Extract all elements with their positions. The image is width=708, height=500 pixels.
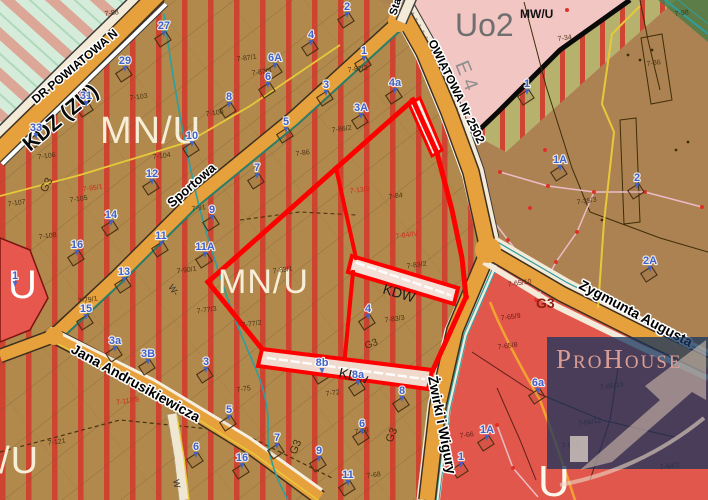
- house-number: 1A: [553, 154, 567, 166]
- house-number: 4: [308, 29, 315, 41]
- house-number: 6: [193, 441, 199, 453]
- house-number: 4a: [389, 77, 402, 89]
- house-number: 6: [265, 71, 271, 83]
- house-number: 12: [146, 168, 158, 180]
- house-number: 2A: [643, 255, 657, 267]
- house-number: 1: [12, 270, 18, 282]
- watermark: ProHouse: [547, 337, 708, 485]
- house-number: 2: [634, 172, 640, 184]
- watermark-brand: ProHouse: [556, 344, 683, 374]
- house-base-icon: [570, 436, 588, 462]
- house-number: 9: [209, 204, 215, 216]
- zone-label: Uo2: [455, 7, 514, 43]
- house-number: 7: [254, 162, 260, 174]
- zone-label: MN/U: [218, 263, 309, 301]
- zone-label: MW/U: [520, 7, 553, 21]
- house-number: 13: [118, 266, 130, 278]
- house-number: 27: [158, 20, 170, 32]
- zone-label: MN/U: [0, 440, 39, 482]
- house-number: 5: [283, 116, 289, 128]
- house-number: 1: [458, 451, 464, 463]
- house-number: 6a: [532, 377, 545, 389]
- zoning-map[interactable]: MN/UMN/UMN/UUUUo2MW/UE 4KDZ (ZU)KDWKDwG3…: [0, 0, 708, 500]
- house-number: 1A: [480, 424, 494, 436]
- house-number: 31: [80, 90, 92, 102]
- house-number: 6: [359, 418, 365, 430]
- house-number: 3a: [109, 335, 122, 347]
- house-number: 7: [274, 432, 280, 444]
- house-number: 4: [365, 303, 372, 315]
- house-number: 16: [236, 452, 248, 464]
- house-number: 10: [186, 130, 198, 142]
- house-number: 8: [226, 91, 232, 103]
- house-number: 9: [316, 445, 322, 457]
- house-number: 3: [323, 79, 329, 91]
- house-number: 5: [226, 404, 232, 416]
- house-number: 3: [203, 356, 209, 368]
- house-number: 11: [342, 469, 354, 481]
- house-number: 11A: [195, 241, 215, 253]
- house-number: 14: [105, 209, 118, 221]
- house-number: 15: [80, 303, 92, 315]
- house-number: 33: [30, 122, 42, 134]
- house-number: 11: [155, 230, 167, 242]
- house-number: 3A: [354, 102, 368, 114]
- zone-label: G3: [536, 295, 555, 311]
- house-number: 8: [399, 385, 405, 397]
- house-number: 29: [119, 55, 131, 67]
- house-number: 1: [524, 78, 530, 90]
- house-number: 2: [344, 1, 350, 13]
- house-number: 6A: [268, 52, 282, 64]
- map-viewport: MN/UMN/UMN/UUUUo2MW/UE 4KDZ (ZU)KDWKDwG3…: [0, 0, 708, 500]
- house-number: 8b: [316, 357, 329, 369]
- house-number: 16: [71, 239, 83, 251]
- house-number: 3B: [141, 348, 155, 360]
- house-number: 1: [361, 45, 367, 57]
- house-number: 8a: [352, 369, 365, 381]
